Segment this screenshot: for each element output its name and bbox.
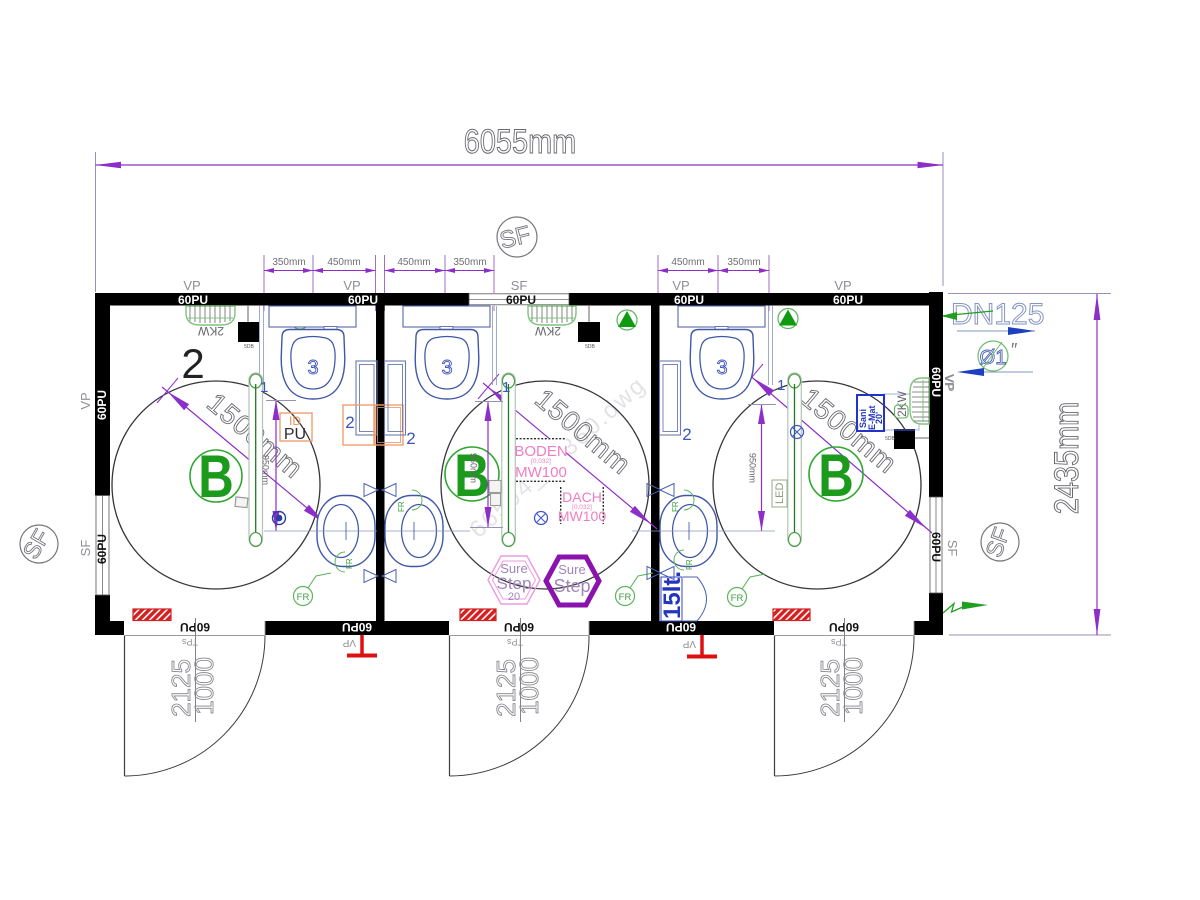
- svg-text:TPs: TPs: [506, 637, 523, 647]
- svg-text:5DB: 5DB: [585, 344, 595, 350]
- svg-text:60PU: 60PU: [504, 620, 534, 634]
- svg-text:DACH: DACH: [562, 489, 602, 505]
- svg-text:FR: FR: [685, 559, 694, 570]
- svg-text:FR: FR: [397, 501, 406, 512]
- svg-text:MW100: MW100: [558, 508, 606, 524]
- svg-text:2: 2: [181, 340, 204, 387]
- svg-text:LED: LED: [774, 483, 786, 504]
- svg-text:6055mm: 6055mm: [464, 122, 576, 161]
- svg-text:Ø1: Ø1: [980, 347, 1007, 369]
- svg-text:FR: FR: [671, 501, 680, 512]
- svg-text:350mm: 350mm: [453, 257, 486, 268]
- svg-text:2125: 2125: [815, 659, 845, 717]
- svg-text:DN125: DN125: [951, 298, 1044, 331]
- svg-text:2KW: 2KW: [197, 324, 224, 338]
- svg-text:VP: VP: [183, 278, 200, 293]
- svg-text:SF: SF: [945, 540, 960, 557]
- svg-text:60PU: 60PU: [929, 367, 943, 397]
- svg-text:FR: FR: [731, 593, 744, 604]
- svg-text:60PU: 60PU: [833, 293, 863, 307]
- svg-text:B: B: [198, 442, 234, 510]
- svg-text:FR: FR: [345, 558, 354, 569]
- svg-text:60PU: 60PU: [95, 534, 109, 564]
- svg-text:60PU: 60PU: [829, 620, 859, 634]
- svg-text:60PU: 60PU: [929, 532, 943, 562]
- svg-text:5DB: 5DB: [244, 344, 254, 350]
- svg-text:20': 20': [874, 412, 884, 424]
- svg-text:VP: VP: [672, 278, 689, 293]
- svg-text:VP: VP: [343, 278, 360, 293]
- svg-text:450mm: 450mm: [397, 257, 430, 268]
- svg-text:950mm: 950mm: [748, 453, 758, 483]
- svg-text:2: 2: [682, 425, 691, 444]
- svg-text:VP: VP: [342, 637, 356, 648]
- svg-text:SF: SF: [78, 540, 93, 557]
- svg-text:VP: VP: [682, 638, 696, 649]
- svg-text:20: 20: [508, 591, 520, 603]
- svg-text:60PU: 60PU: [178, 293, 208, 307]
- svg-text:TPs: TPs: [830, 637, 847, 647]
- svg-text:3: 3: [441, 357, 452, 379]
- svg-text:Sure: Sure: [558, 562, 585, 577]
- svg-text:TPs: TPs: [181, 637, 198, 647]
- svg-text:2KW: 2KW: [534, 324, 561, 338]
- svg-text:PU: PU: [284, 426, 306, 443]
- svg-text:2435mm: 2435mm: [1047, 402, 1086, 514]
- svg-text:60PU: 60PU: [180, 620, 210, 634]
- svg-text:VP: VP: [834, 278, 851, 293]
- svg-text:60PU: 60PU: [666, 620, 696, 634]
- svg-text:1: 1: [502, 379, 510, 396]
- svg-text:B: B: [818, 441, 854, 509]
- svg-text:60PU: 60PU: [348, 293, 378, 307]
- svg-text:60PU: 60PU: [506, 293, 536, 307]
- svg-text:350mm: 350mm: [727, 257, 760, 268]
- svg-text:2KW: 2KW: [895, 390, 909, 417]
- svg-text:2125: 2125: [491, 659, 521, 717]
- svg-text:SF: SF: [511, 278, 528, 293]
- svg-text:450mm: 450mm: [327, 257, 360, 268]
- svg-text:2: 2: [406, 429, 415, 448]
- svg-text:5DB: 5DB: [885, 436, 895, 442]
- svg-text:950mm: 950mm: [469, 453, 479, 483]
- svg-text:1: 1: [260, 379, 268, 396]
- svg-text:450mm: 450mm: [671, 257, 704, 268]
- svg-text:3: 3: [307, 357, 318, 379]
- svg-text:2: 2: [345, 413, 354, 432]
- svg-text:FR: FR: [297, 592, 310, 603]
- svg-text:3: 3: [716, 357, 727, 379]
- svg-text:FR: FR: [619, 592, 632, 603]
- svg-text:″: ″: [1011, 340, 1018, 360]
- svg-text:2125: 2125: [166, 659, 196, 717]
- svg-text:MW100: MW100: [515, 464, 567, 481]
- svg-text:15lt.: 15lt.: [659, 571, 686, 619]
- svg-text:1: 1: [777, 377, 785, 394]
- svg-text:VP: VP: [942, 374, 957, 391]
- svg-text:60PU: 60PU: [342, 620, 372, 634]
- svg-text:60PU: 60PU: [95, 390, 109, 420]
- svg-text:950mm: 950mm: [261, 455, 271, 485]
- svg-text:VP: VP: [78, 392, 93, 409]
- svg-text:Step: Step: [553, 576, 590, 596]
- svg-text:350mm: 350mm: [272, 257, 305, 268]
- svg-text:60PU: 60PU: [674, 293, 704, 307]
